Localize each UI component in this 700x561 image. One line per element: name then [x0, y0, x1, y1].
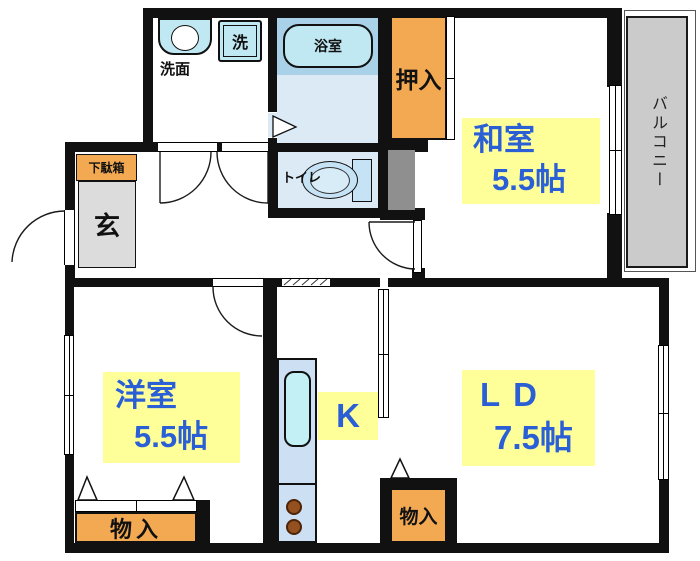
closet-fold-triangle-3: [391, 459, 409, 478]
kitchen-name: K: [336, 397, 360, 435]
closet-fold-triangle-2: [173, 477, 194, 500]
washitsu-size: 5.5帖: [462, 160, 600, 200]
yoshitsu-label: 洋室 5.5帖: [103, 372, 240, 463]
kitchen-slide-hatch: [284, 279, 327, 285]
stove-burner-2: [287, 520, 301, 534]
stove-burner-1: [287, 500, 301, 514]
yoshitsu-door-arc: [213, 287, 262, 336]
ld-name: LD: [462, 373, 595, 416]
washitsu-door-arc: [369, 222, 415, 269]
entrance-door-arc: [12, 211, 65, 262]
washitsu-label: 和室 5.5帖: [462, 118, 600, 204]
closet-fold-triangle-1: [78, 477, 97, 500]
bath-fold-door-icon: [273, 116, 296, 137]
hall-door2-arc: [217, 152, 268, 203]
ld-label: LD 7.5帖: [462, 370, 595, 466]
hall-door1-arc: [160, 152, 211, 203]
washitsu-name: 和室: [462, 120, 600, 160]
ld-size: 7.5帖: [462, 416, 595, 459]
yoshitsu-name: 洋室: [103, 375, 240, 416]
floor-plan: バルコニー 浴室 トイレ 洗面 洗 下駄箱 玄 押入 物入 物入: [0, 0, 700, 561]
plan-symbols: [0, 0, 700, 561]
yoshitsu-size: 5.5帖: [103, 416, 240, 457]
kitchen-label: K: [318, 392, 378, 440]
